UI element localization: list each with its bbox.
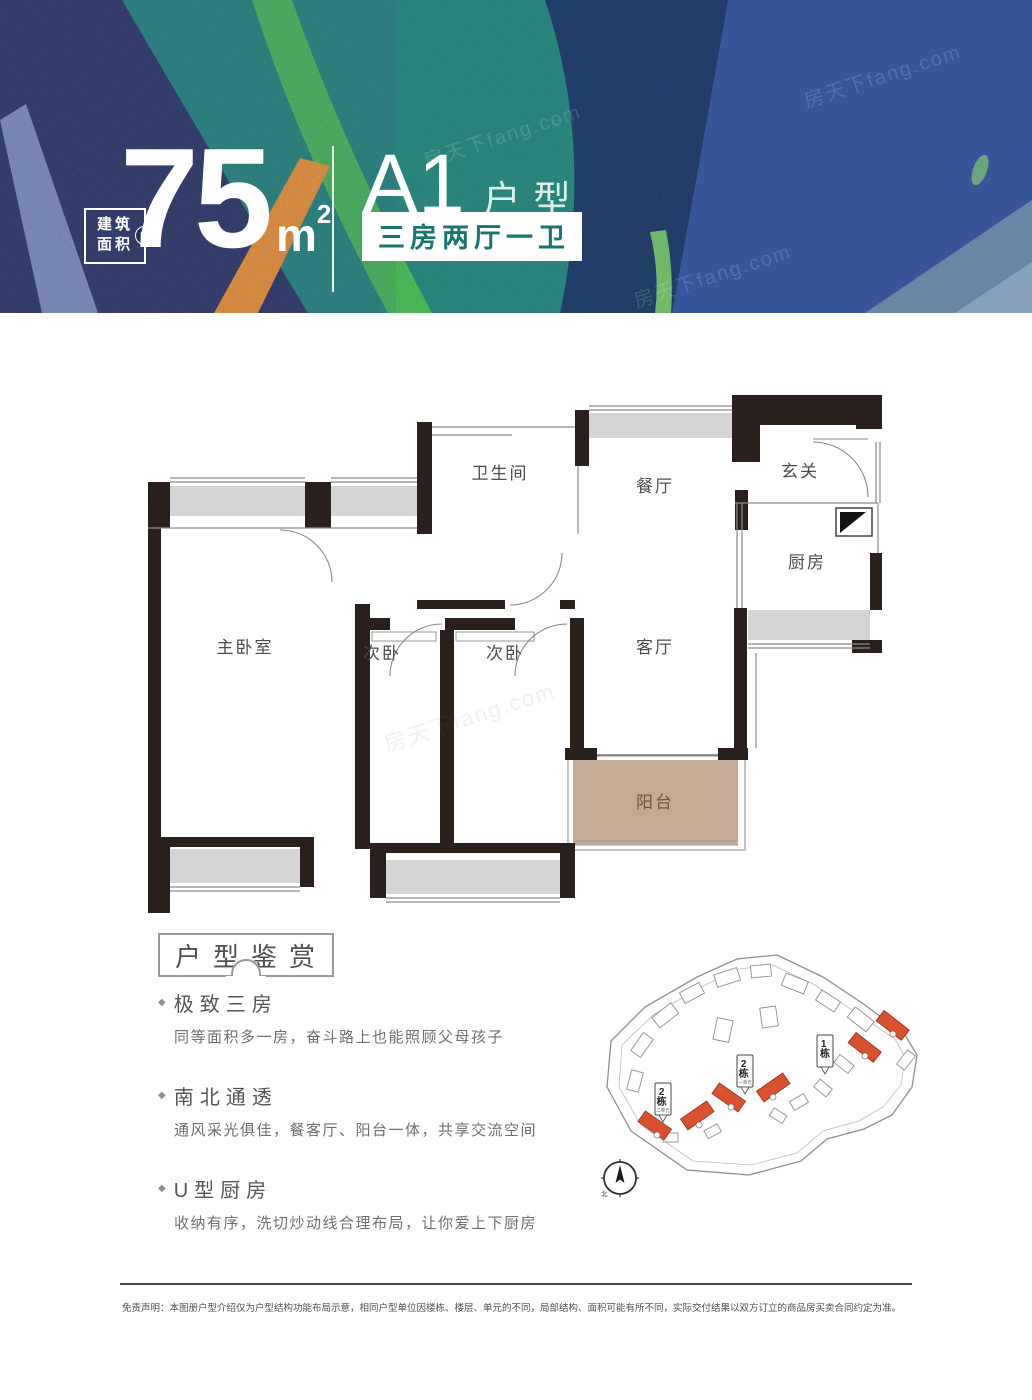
divider-line [332,146,334,292]
feature-body: 同等面积多一房，奋斗路上也能照顾父母孩子 [174,1026,588,1047]
disclaimer-text: 免责声明：本图册户型介绍仅为户型结构功能布局示意，相同户型单位因楼栋、楼层、单元… [122,1301,916,1316]
feature-heading: 极致三房 [174,988,278,1017]
room-label-kitchen: 厨房 [788,553,826,572]
svg-text:1 栋: 1 栋 [819,1039,830,1060]
room-label-balcony: 阳台 [636,793,674,812]
area-number: 75 [120,128,268,270]
layout-tag: 三房两厅一卫 [362,212,582,261]
floor-plan: 卫生间 餐厅 玄关 厨房 主卧室 次卧 次卧 客厅 阳台 [120,382,920,952]
feature-list: ◆ 极致三房 同等面积多一房，奋斗路上也能照顾父母孩子 ◆ 南北通透 通风采光俱… [158,988,588,1267]
room-label-master-bedroom: 主卧室 [217,638,274,657]
room-label-bedroom-3: 次卧 [486,644,524,663]
footer-divider [120,1283,912,1285]
diamond-bullet-icon: ◆ [158,1090,166,1101]
feature-item: ◆ 极致三房 同等面积多一房，奋斗路上也能照顾父母孩子 [158,988,588,1047]
site-boundary [607,955,917,1175]
section-title: 户型鉴赏 [158,933,334,977]
area-unit: m2 [276,201,331,258]
diamond-bullet-icon: ◆ [158,997,166,1008]
kitchen-counter-icon [836,508,872,536]
feature-heading: 南北通透 [174,1081,278,1110]
room-label-bathroom: 卫生间 [472,464,529,483]
feature-item: ◆ U型厨房 收纳有序，洗切炒动线合理布局，让你爱上下厨房 [158,1174,588,1233]
room-label-bedroom-2: 次卧 [363,644,401,663]
feature-body: 收纳有序，洗切炒动线合理布局，让你爱上下厨房 [174,1212,588,1233]
room-label-living: 客厅 [636,638,674,657]
compass-icon: 北 [601,1159,639,1198]
diamond-bullet-icon: ◆ [158,1183,166,1194]
area-value: 75 m2 [120,128,331,270]
banner: 房天下fang.com 房天下fang.com 房天下fang.com 建筑 面… [0,0,1032,313]
room-label-entry: 玄关 [781,462,819,481]
room-label-dining: 餐厅 [636,477,674,496]
feature-item: ◆ 南北通透 通风采光俱佳，餐客厅、阳台一体，共享交流空间 [158,1081,588,1140]
site-plan: 1 栋 2 栋 一单元 2 栋 二单元 [565,935,965,1220]
svg-text:北: 北 [601,1190,608,1198]
feature-heading: U型厨房 [174,1174,272,1203]
feature-body: 通风采光俱佳，餐客厅、阳台一体，共享交流空间 [174,1119,588,1140]
